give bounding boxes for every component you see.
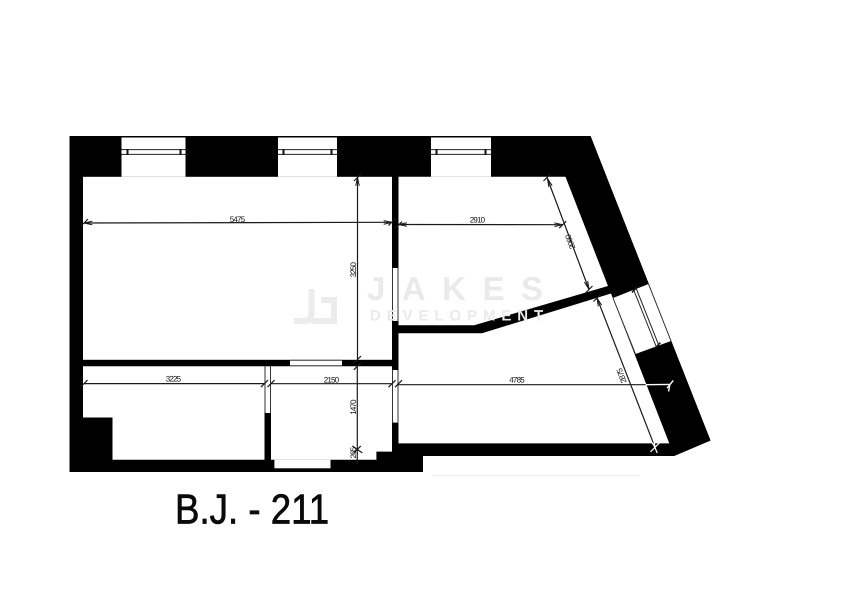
- svg-text:5475: 5475: [230, 215, 246, 224]
- svg-text:265: 265: [349, 446, 358, 458]
- svg-text:B.J. - 211: B.J. - 211: [175, 486, 329, 533]
- svg-text:2910: 2910: [470, 215, 486, 224]
- svg-text:2150: 2150: [324, 375, 340, 384]
- svg-text:1470: 1470: [349, 399, 358, 415]
- svg-text:JAKES: JAKES: [367, 270, 560, 307]
- svg-text:4785: 4785: [509, 375, 525, 384]
- svg-text:DEVELOPMENT: DEVELOPMENT: [370, 308, 549, 325]
- svg-text:3225: 3225: [166, 375, 182, 384]
- svg-text:3250: 3250: [349, 262, 358, 278]
